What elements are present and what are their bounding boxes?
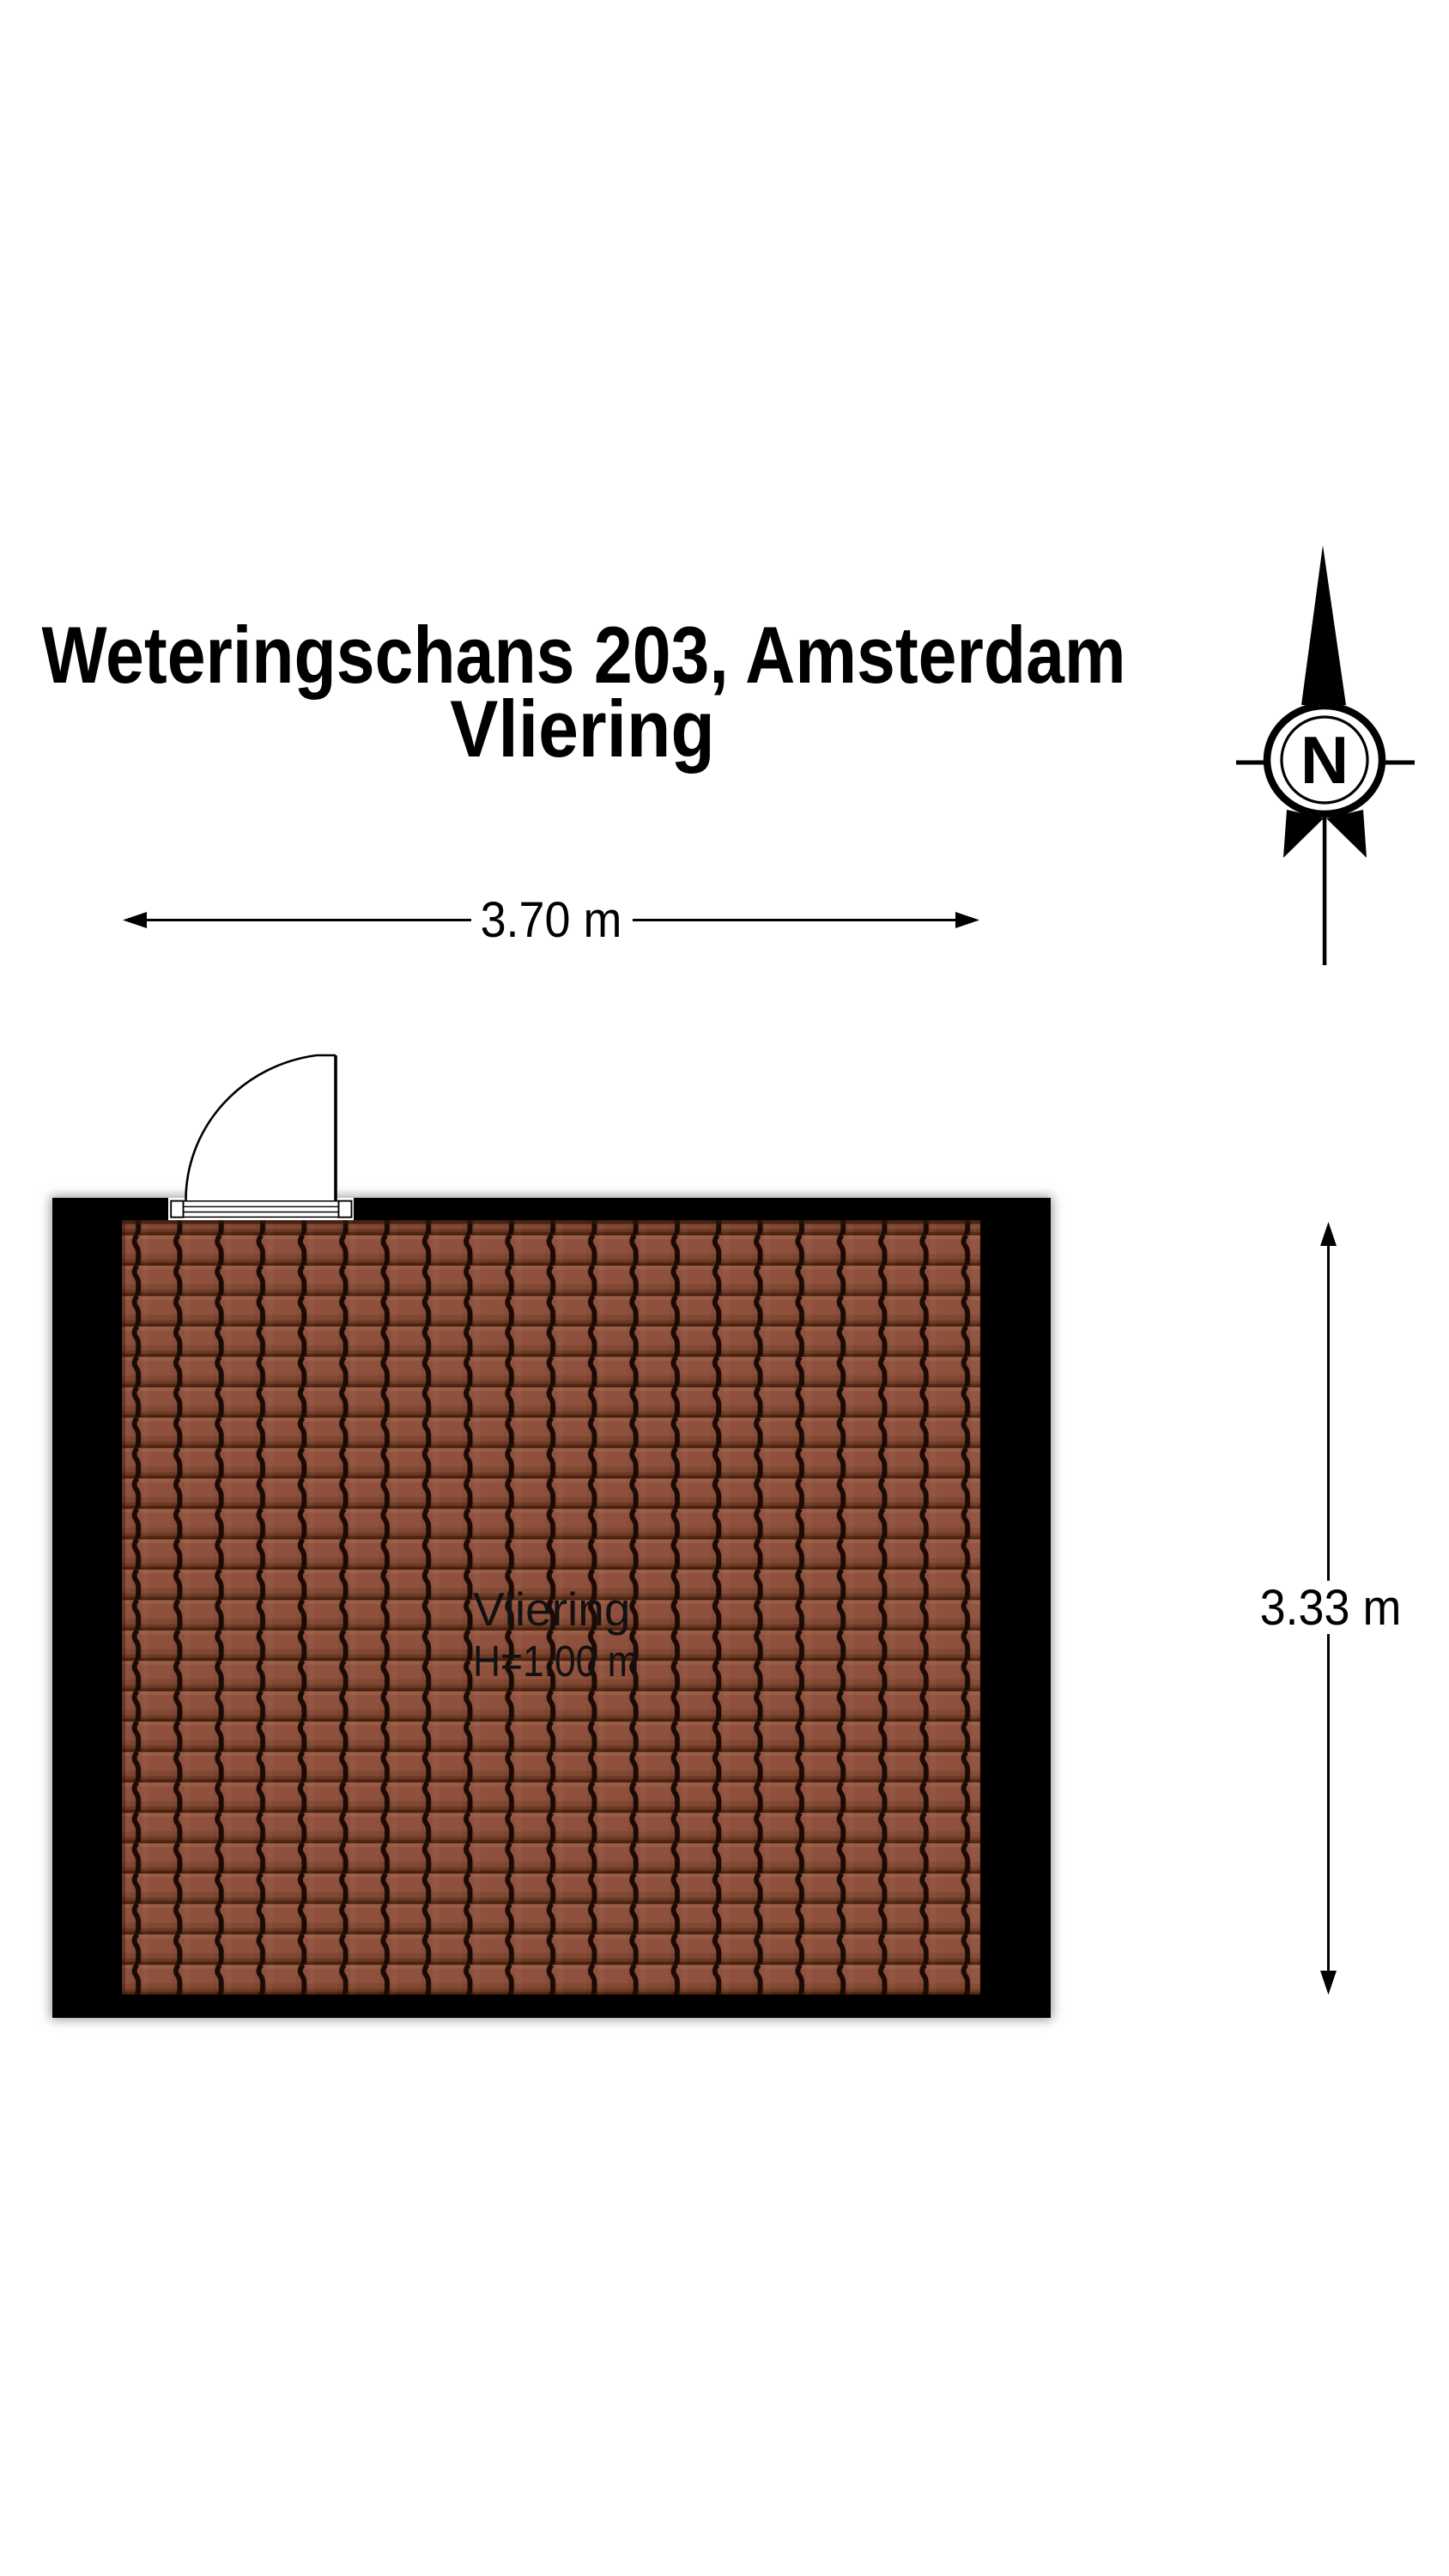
svg-text:Vliering: Vliering bbox=[450, 683, 714, 774]
svg-text:Vliering: Vliering bbox=[473, 1583, 630, 1636]
svg-text:3.70 m: 3.70 m bbox=[481, 891, 622, 947]
svg-text:3.33 m: 3.33 m bbox=[1260, 1579, 1402, 1635]
svg-text:H=1.00 m: H=1.00 m bbox=[473, 1637, 640, 1686]
svg-text:N: N bbox=[1300, 722, 1349, 798]
